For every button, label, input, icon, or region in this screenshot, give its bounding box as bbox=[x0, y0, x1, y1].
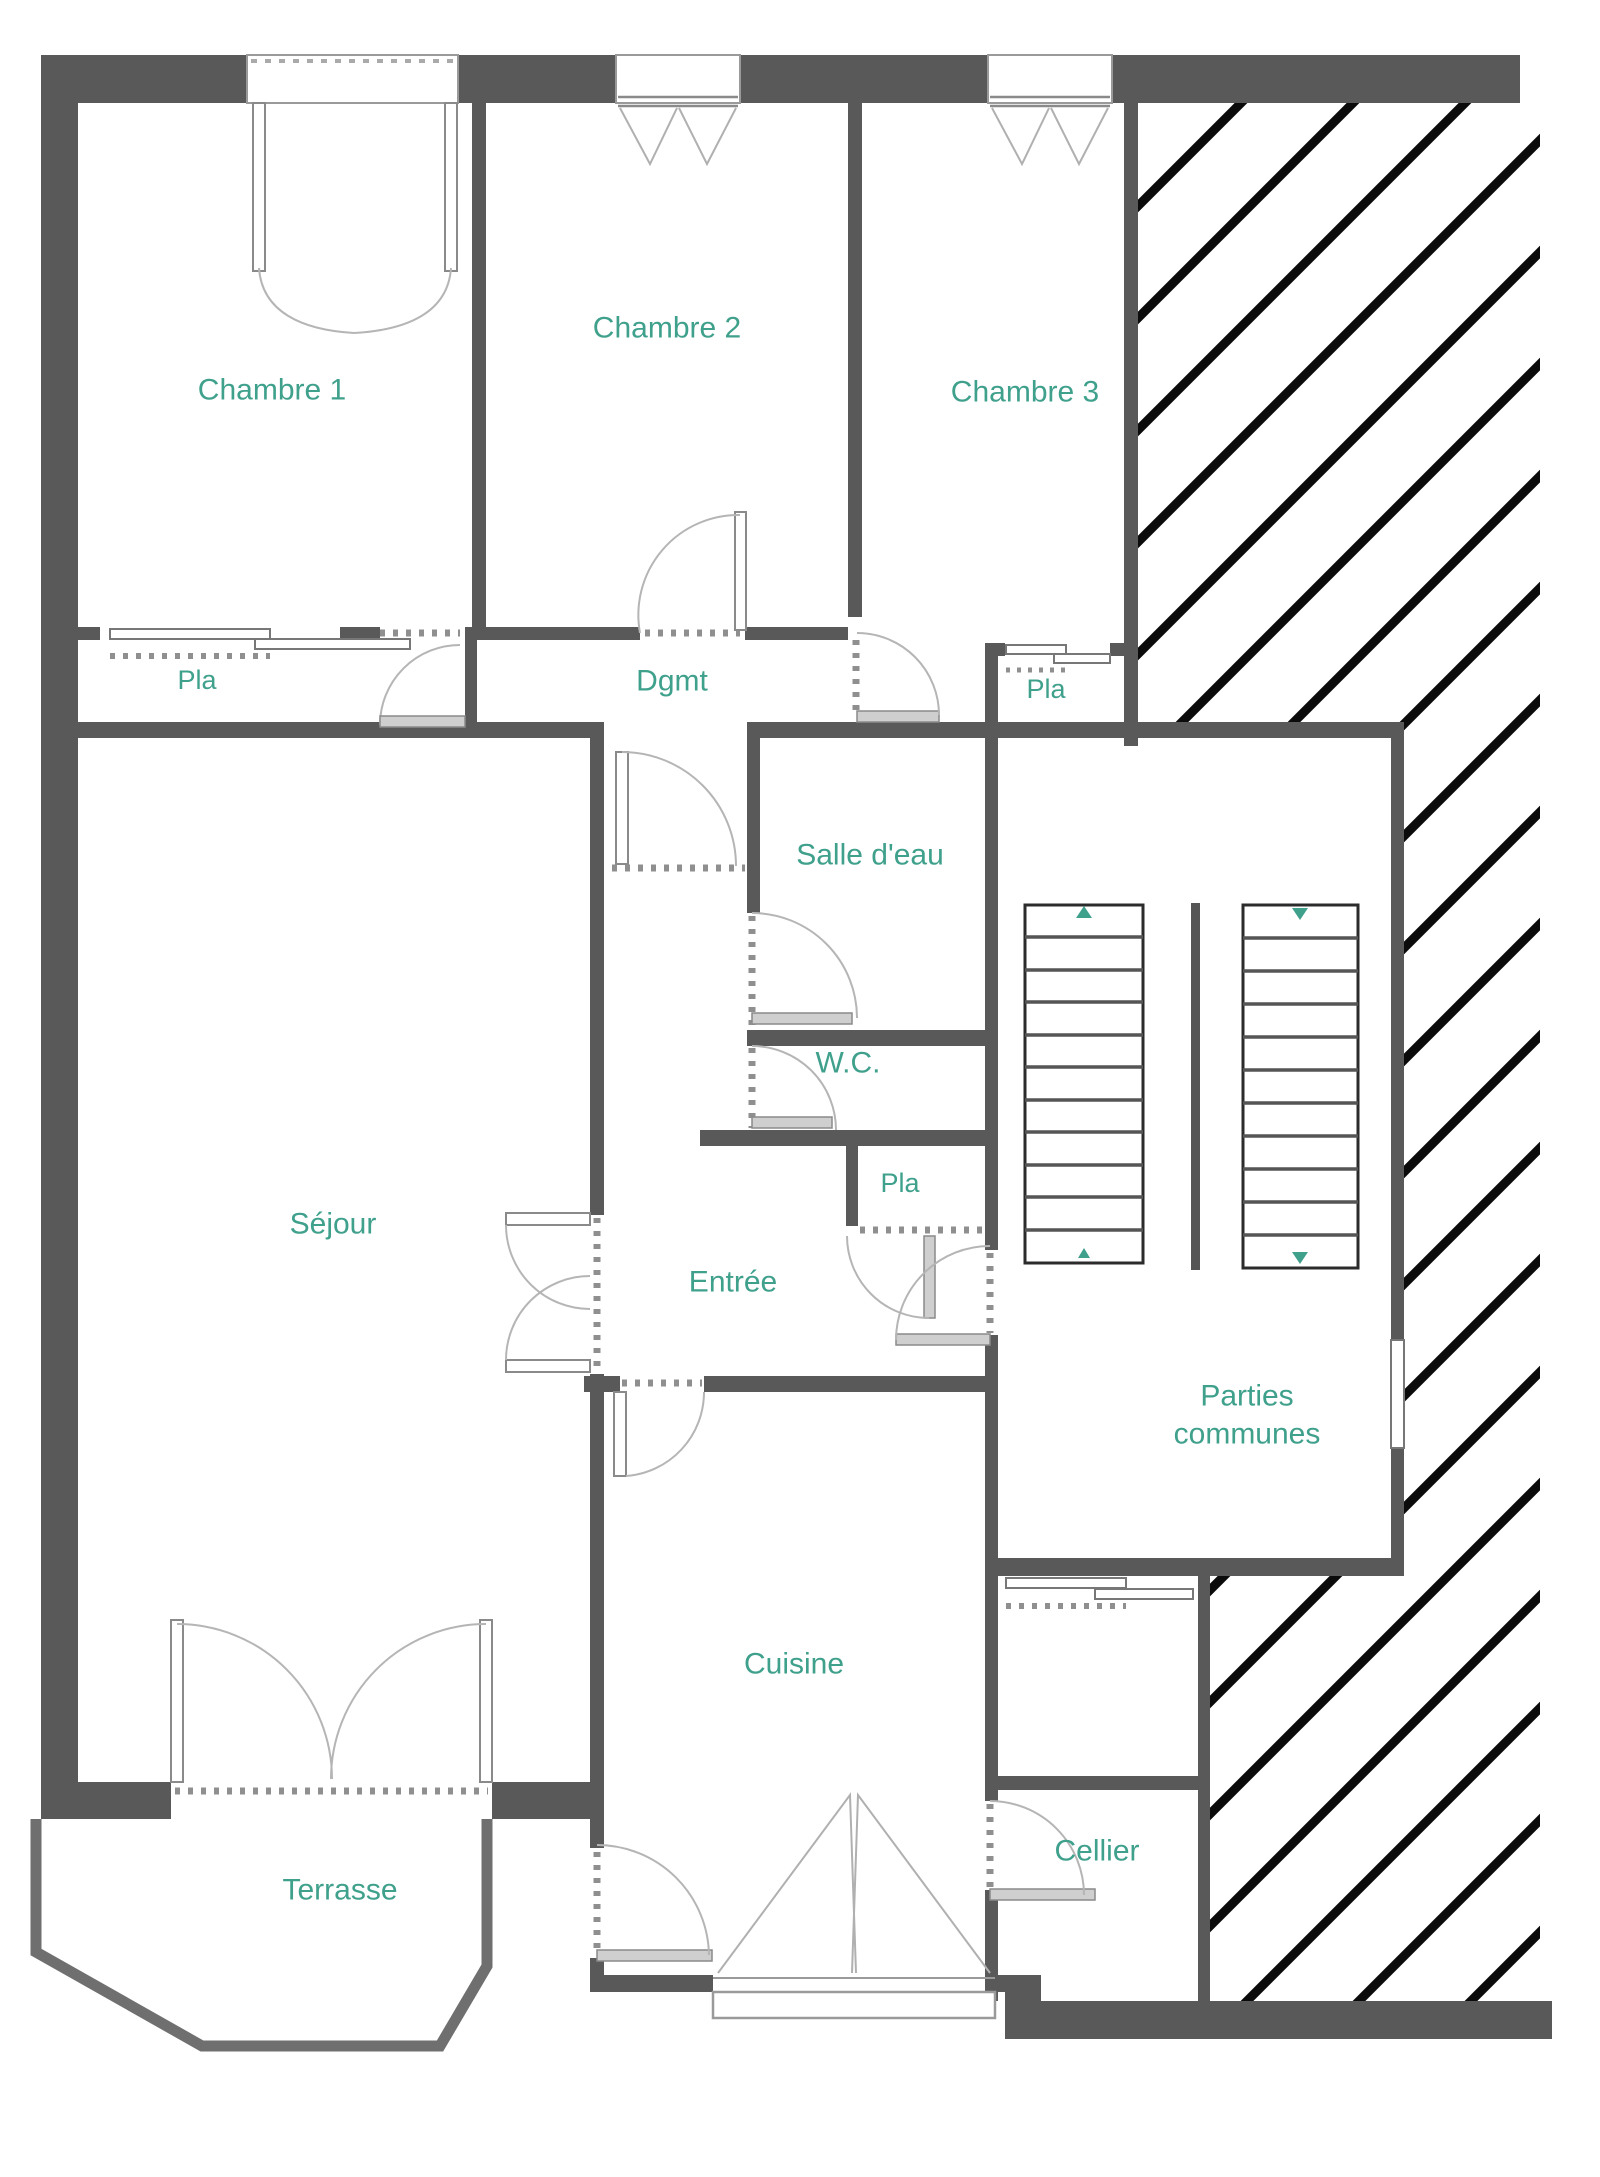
floor-plan-drawing bbox=[0, 0, 1600, 2177]
terrace-walls bbox=[36, 1819, 487, 2046]
floor-plan: Chambre 1Chambre 2Chambre 3PlaDgmtPlaSal… bbox=[0, 0, 1600, 2177]
stair-flight-down bbox=[1243, 905, 1358, 1268]
door-chambre-2 bbox=[638, 512, 746, 633]
door-cellier bbox=[990, 1801, 1095, 1900]
sliding-door-pla-chambre-3 bbox=[1006, 645, 1110, 670]
door-entree-cuisine bbox=[614, 1383, 704, 1476]
door-sejour-entree-double bbox=[506, 1213, 597, 1372]
door-sejour-terrasse-double bbox=[171, 1620, 492, 1791]
door-wc bbox=[752, 1046, 836, 1130]
window-chambre-2 bbox=[616, 55, 740, 164]
palier-door bbox=[1391, 1340, 1404, 1448]
stairs-parties-communes bbox=[1025, 903, 1358, 1270]
window-chambre-1 bbox=[247, 55, 458, 333]
stair-flight-up bbox=[1025, 905, 1143, 1263]
door-entree-palier bbox=[896, 1246, 990, 1345]
door-dgmt-entree bbox=[612, 752, 745, 868]
door-pla-entree bbox=[847, 1230, 983, 1318]
stair-divider bbox=[1191, 903, 1200, 1270]
door-chambre-3 bbox=[856, 633, 939, 722]
sliding-door-rangement bbox=[1006, 1578, 1193, 1606]
window-chambre-3 bbox=[988, 55, 1112, 164]
door-cuisine-service bbox=[597, 1845, 712, 1961]
window-cuisine bbox=[713, 1795, 995, 2018]
door-salle-d-eau bbox=[752, 913, 857, 1026]
